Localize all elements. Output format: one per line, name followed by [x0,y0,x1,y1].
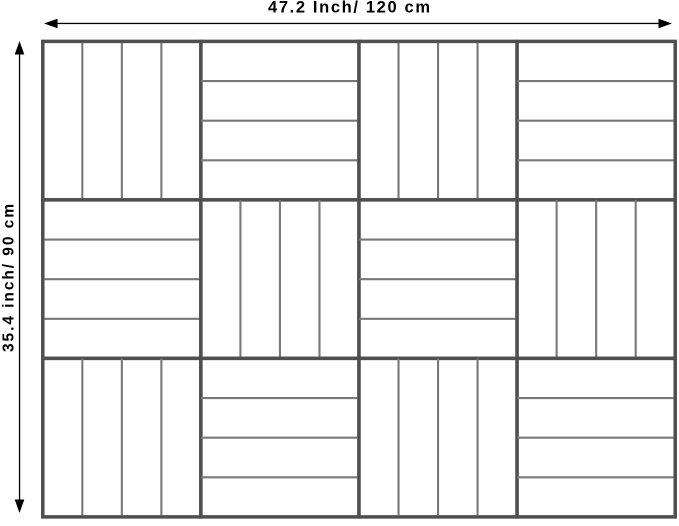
svg-text:47.2 Inch/ 120 cm: 47.2 Inch/ 120 cm [268,0,430,17]
svg-text:35.4 inch/ 90 cm: 35.4 inch/ 90 cm [0,204,17,352]
